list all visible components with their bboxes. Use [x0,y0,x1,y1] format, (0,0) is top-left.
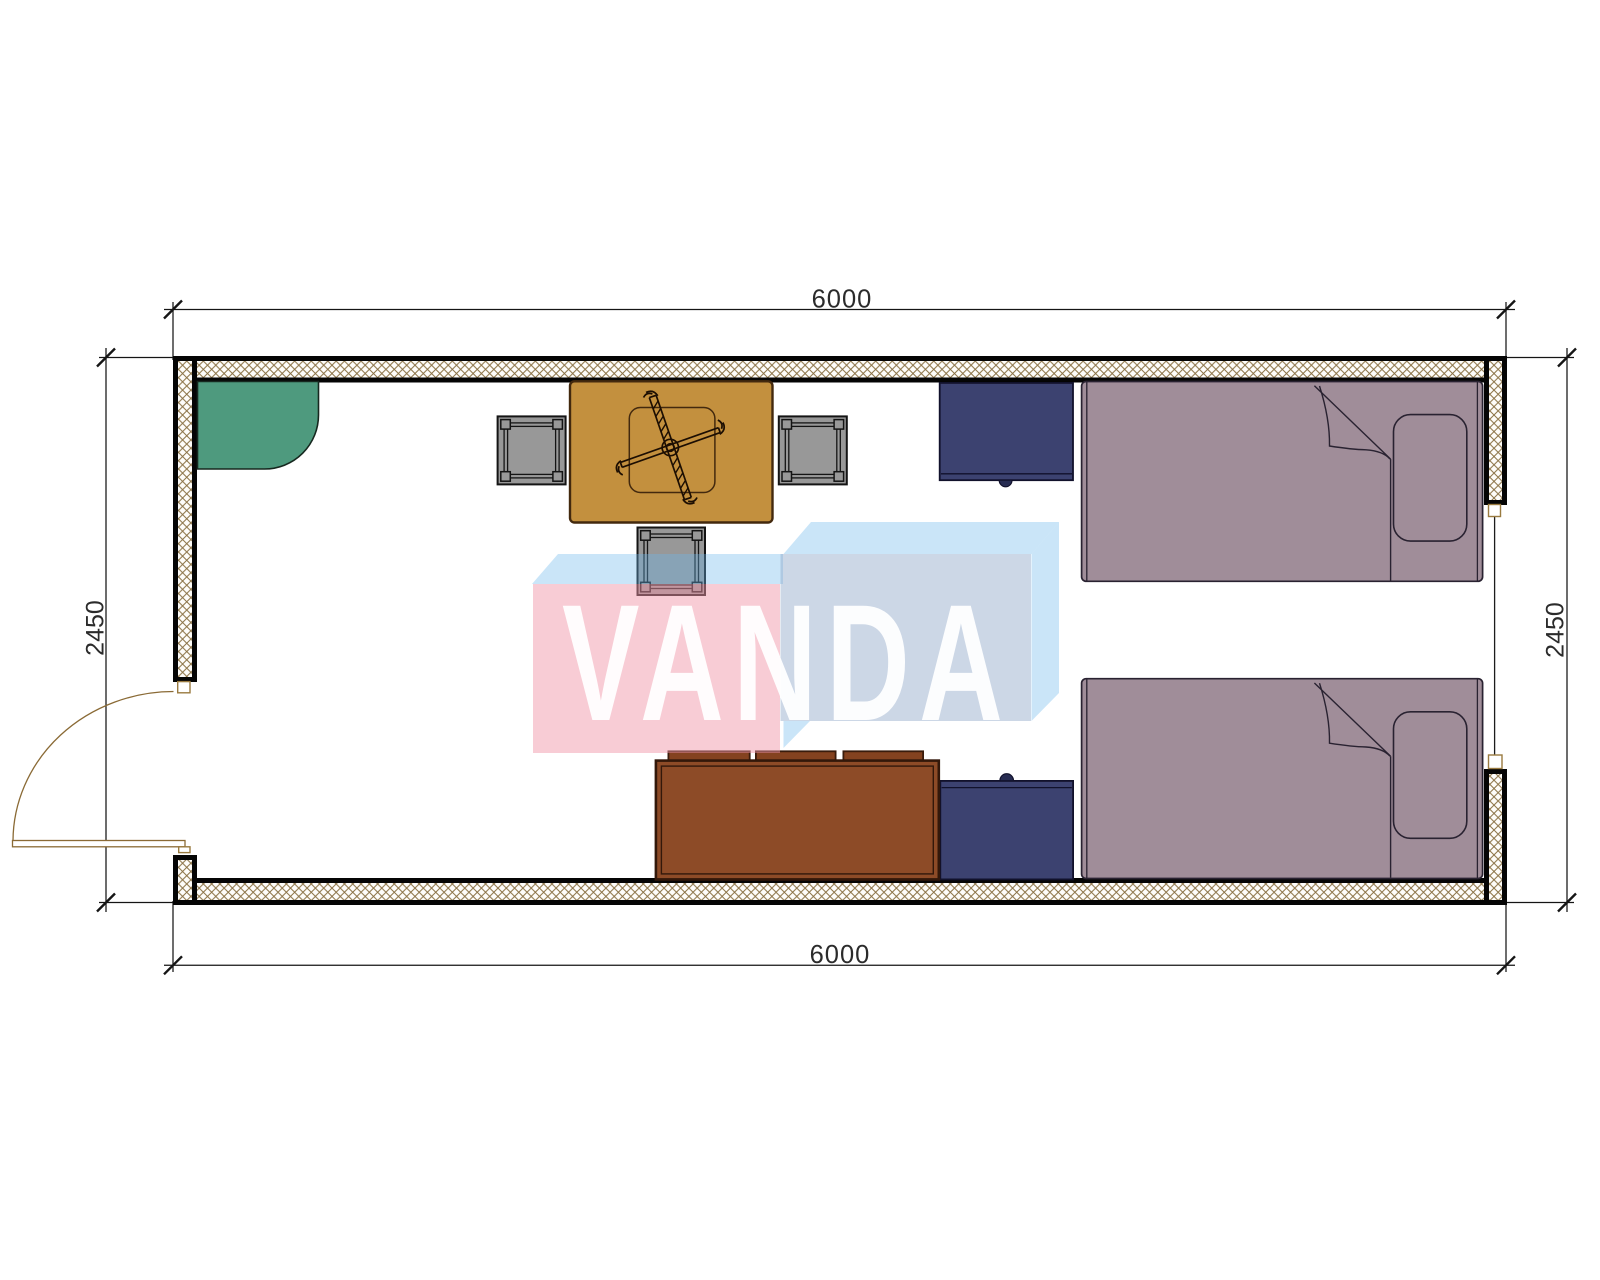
svg-text:2450: 2450 [1542,602,1570,658]
svg-text:6000: 6000 [812,286,873,314]
svg-text:6000: 6000 [810,941,871,969]
svg-text:VANDA: VANDA [562,571,1012,756]
svg-text:2450: 2450 [82,600,110,656]
